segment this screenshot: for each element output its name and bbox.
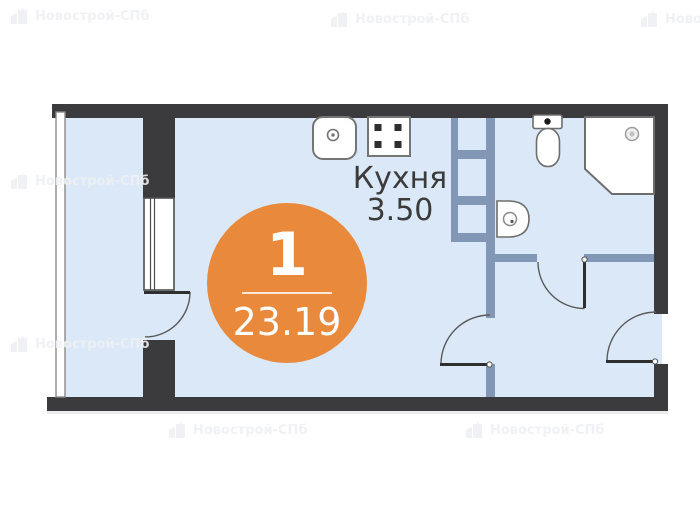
wall-pillar-lower <box>143 340 175 397</box>
bathroom-wall-left <box>495 254 537 262</box>
balcony-window <box>144 198 174 290</box>
wall-shadow <box>47 411 668 414</box>
kitchen-label: Кухня 3.50 <box>338 163 462 226</box>
unit-area: 23.19 <box>233 303 342 341</box>
floorplan-page: Кухня 3.50 1 23.19 Новострой-СПб Новостр… <box>0 0 700 527</box>
wall-bottom <box>47 397 668 411</box>
unit-number: 1 <box>266 225 308 285</box>
kitchen-sink-icon <box>313 117 356 159</box>
vent-shaft-rung <box>458 196 486 205</box>
badge-divider <box>242 292 332 294</box>
vent-shaft-rung <box>458 233 486 242</box>
balcony-glazing <box>56 112 65 397</box>
vent-shaft-rung <box>458 150 486 159</box>
bathroom-wall-right <box>584 254 654 262</box>
wall-top <box>52 104 668 118</box>
kitchen-name: Кухня <box>338 163 462 195</box>
kitchen-area: 3.50 <box>338 195 462 227</box>
partition-wall-post <box>486 364 495 397</box>
unit-badge: 1 23.19 <box>207 203 367 363</box>
wall-right-upper <box>654 104 668 314</box>
wall-pillar-upper <box>143 118 175 198</box>
stove-icon <box>368 117 410 156</box>
washbasin-icon <box>497 201 529 237</box>
toilet-icon <box>533 115 562 167</box>
partition-wall-vertical <box>486 118 495 318</box>
